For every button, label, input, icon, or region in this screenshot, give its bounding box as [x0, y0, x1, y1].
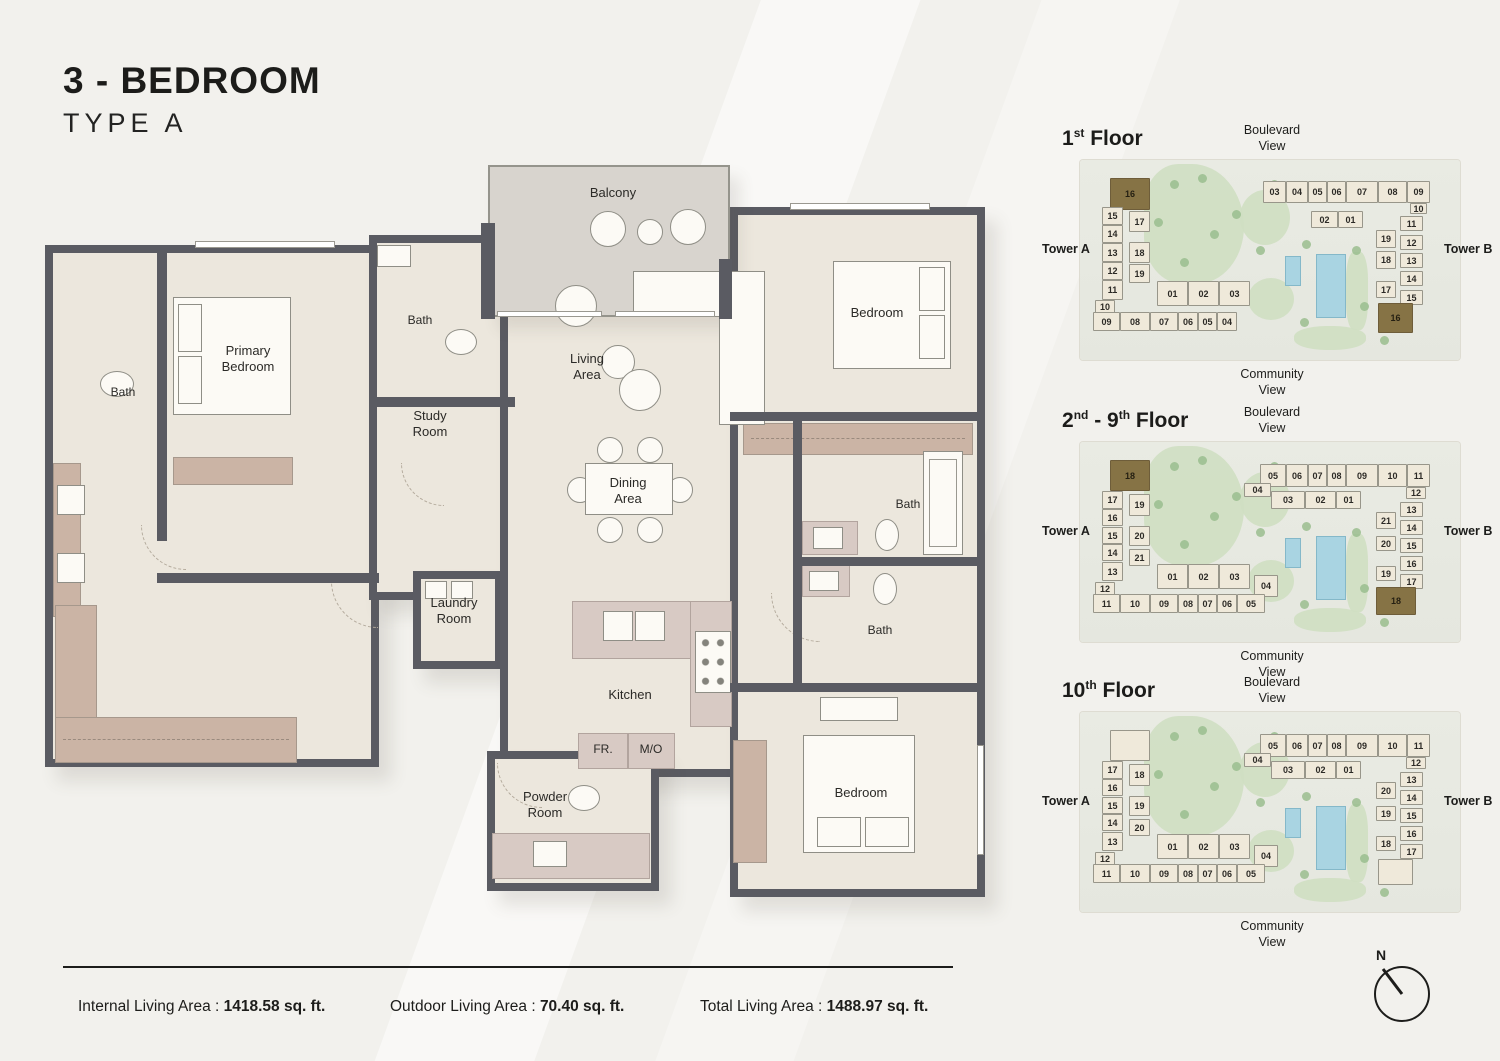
unit-cell: 17 [1102, 491, 1123, 509]
unit-cell: 19 [1129, 494, 1150, 516]
page-title: 3 - BEDROOM [63, 60, 321, 102]
unit-cell: 10 [1378, 734, 1407, 757]
tree-icon [1256, 528, 1265, 537]
unit-cell: 06 [1286, 734, 1308, 757]
window [790, 203, 930, 210]
unit-cell: 02 [1188, 564, 1219, 589]
dresser [820, 697, 898, 721]
unit-cell: 08 [1378, 181, 1407, 203]
room-label: Bath [868, 623, 893, 638]
unit-cell: 01 [1157, 564, 1188, 589]
unit-cell: 01 [1338, 211, 1363, 228]
stat-value: 1488.97 sq. ft. [827, 998, 929, 1015]
unit-cell: 09 [1407, 181, 1430, 203]
title-segment: 1 [1062, 127, 1074, 150]
wardrobe-dash [751, 438, 965, 439]
title-segment: st [1074, 126, 1085, 140]
unit-cell-highlighted: 18 [1110, 460, 1150, 491]
window [615, 311, 715, 317]
room-label: Bath [111, 385, 136, 400]
unit-cell: 16 [1102, 779, 1123, 796]
wall [481, 223, 495, 319]
wall [719, 259, 732, 319]
room-label: Dining Area [610, 475, 647, 508]
unit-cell: 09 [1346, 734, 1378, 757]
unit-cell: 12 [1102, 262, 1123, 280]
wall [730, 412, 985, 421]
key-plan-title: 2nd - 9th Floor [1062, 408, 1188, 433]
boulevard-view-label: Boulevard View [1232, 674, 1312, 707]
swimming-pool [1285, 538, 1301, 568]
stat-label: Outdoor Living Area [390, 998, 527, 1015]
key-plan-floor-1: 1st Floor Boulevard View 161514131211101… [1040, 120, 1500, 400]
unit-cell: 06 [1327, 181, 1346, 203]
swimming-pool [1316, 536, 1346, 600]
window [977, 745, 984, 855]
unit-cell: 19 [1376, 566, 1396, 581]
tree-icon [1170, 462, 1179, 471]
unit-cell: 03 [1271, 761, 1305, 779]
unit-cell: 07 [1198, 594, 1217, 613]
unit-cell: 12 [1406, 487, 1426, 499]
unit-cell: 08 [1178, 864, 1198, 883]
unit-cell: 02 [1311, 211, 1338, 228]
tree-icon [1380, 336, 1389, 345]
unit-cell: 06 [1217, 594, 1237, 613]
tree-icon [1198, 456, 1207, 465]
unit-cell: 17 [1129, 211, 1150, 232]
stat-label: Internal Living Area [78, 998, 211, 1015]
unit-cell-highlighted: 16 [1110, 178, 1150, 210]
unit-cell: 03 [1263, 181, 1286, 203]
tree-icon [1210, 512, 1219, 521]
tower-b-label: Tower B [1444, 242, 1492, 256]
unit-cell: 03 [1219, 281, 1250, 306]
landscape-green [1346, 534, 1368, 612]
tree-icon [1302, 522, 1311, 531]
title-segment: Floor [1084, 127, 1142, 150]
room-label: Powder Room [523, 789, 567, 822]
tree-icon [1300, 318, 1309, 327]
tower-b-label: Tower B [1444, 524, 1492, 538]
unit-cell: 15 [1400, 538, 1423, 553]
unit-cell: 12 [1400, 235, 1423, 250]
tree-icon [1352, 798, 1361, 807]
unit-cell: 20 [1129, 819, 1150, 836]
armchair [555, 285, 597, 327]
unit-cell: 13 [1400, 502, 1423, 517]
unit-cell: 05 [1308, 181, 1327, 203]
pillow [817, 817, 861, 847]
tree-icon [1232, 210, 1241, 219]
unit-cell: 21 [1129, 549, 1150, 566]
tree-icon [1154, 770, 1163, 779]
unit-cell: 07 [1198, 864, 1217, 883]
unit-cell: 11 [1102, 280, 1123, 300]
unit-cell: 05 [1237, 864, 1265, 883]
room-label: Bath [408, 313, 433, 328]
unit-cell: 18 [1129, 764, 1150, 786]
unit-cell: 15 [1102, 527, 1123, 544]
tree-icon [1180, 810, 1189, 819]
title-segment: 2 [1062, 409, 1074, 432]
unit-cell: 11 [1093, 594, 1120, 613]
unit-cell: 07 [1346, 181, 1378, 203]
sink [813, 527, 843, 549]
unit-cell: 11 [1407, 734, 1430, 757]
title-segment: nd [1074, 408, 1089, 422]
sink [377, 245, 411, 267]
wall [730, 683, 985, 692]
unit-cell: 17 [1400, 844, 1423, 859]
room-label: Balcony [590, 185, 636, 201]
closet-dash [63, 739, 289, 740]
landscape-green [1294, 326, 1366, 350]
pillow [919, 267, 945, 311]
swimming-pool [1285, 256, 1301, 286]
tower-a-label: Tower A [1042, 242, 1090, 256]
compass-needle [1383, 969, 1402, 994]
dining-chair [597, 517, 623, 543]
unit-cell: 18 [1376, 251, 1396, 269]
stat-separator: : [814, 998, 827, 1015]
wall [157, 573, 379, 583]
wall [793, 557, 985, 566]
dining-chair [597, 437, 623, 463]
stove [695, 631, 731, 693]
tree-icon [1180, 540, 1189, 549]
community-view-label: Community View [1232, 918, 1312, 951]
unit-cell: 13 [1400, 772, 1423, 787]
tree-icon [1154, 500, 1163, 509]
tree-icon [1256, 798, 1265, 807]
unit-cell: 19 [1129, 796, 1150, 816]
unit-cell: 04 [1244, 753, 1271, 767]
tree-icon [1154, 218, 1163, 227]
unit-cell: 01 [1157, 281, 1188, 306]
key-plan-floor-10: 10th Floor Boulevard View 17161514131218… [1040, 672, 1500, 952]
unit-cell: 02 [1188, 281, 1219, 306]
unit-cell: 15 [1400, 808, 1423, 823]
unit-cell: 19 [1376, 806, 1396, 821]
pillow [178, 356, 202, 404]
unit-cell: 16 [1400, 556, 1423, 571]
unit-cell: 09 [1346, 464, 1378, 487]
toilet [445, 329, 477, 355]
unit-cell: 10 [1120, 864, 1150, 883]
toilet [875, 519, 899, 551]
stat-value: 1418.58 sq. ft. [224, 998, 326, 1015]
dining-chair [637, 517, 663, 543]
community-view-label: Community View [1232, 366, 1312, 399]
toilet [568, 785, 600, 811]
outdoor-living-area-stat: Outdoor Living Area : 70.40 sq. ft. [390, 998, 624, 1016]
unit-cell: 05 [1198, 312, 1217, 331]
unit-cell: 14 [1400, 520, 1423, 535]
tree-icon [1380, 618, 1389, 627]
unit-cell: 14 [1102, 814, 1123, 831]
tree-icon [1210, 230, 1219, 239]
north-label: N [1376, 947, 1386, 963]
primary-wardrobe [173, 457, 293, 485]
title-segment: 10 [1062, 679, 1085, 702]
unit-cell: 06 [1217, 864, 1237, 883]
unit-cell: 02 [1188, 834, 1219, 859]
swimming-pool [1316, 254, 1346, 318]
landscape-green [1294, 608, 1366, 632]
pillow [178, 304, 202, 352]
swimming-pool [1285, 808, 1301, 838]
unit-cell: 06 [1286, 464, 1308, 487]
room-label: Living Area [570, 351, 604, 384]
unit-cell: 12 [1406, 757, 1426, 769]
unit-cell: 15 [1102, 207, 1123, 225]
unit-cell: 01 [1157, 834, 1188, 859]
unit-cell: 10 [1120, 594, 1150, 613]
room-label: Bedroom [851, 305, 904, 321]
tree-icon [1232, 762, 1241, 771]
unit-cell: 16 [1102, 509, 1123, 526]
sink [533, 841, 567, 867]
unit-cell: 14 [1102, 225, 1123, 243]
tree-icon [1210, 782, 1219, 791]
sink [57, 553, 85, 583]
tree-icon [1352, 528, 1361, 537]
unit-cell: 13 [1400, 253, 1423, 268]
tree-icon [1198, 726, 1207, 735]
wall [793, 415, 802, 691]
unit-cell: 10 [1410, 203, 1427, 214]
title-segment: Floor [1130, 409, 1188, 432]
unit-cell: 08 [1327, 734, 1346, 757]
room-label: Kitchen [608, 687, 651, 703]
tree-icon [1170, 732, 1179, 741]
unit-cell: 14 [1400, 790, 1423, 805]
unit-cell: 11 [1407, 464, 1430, 487]
title-segment: - 9 [1088, 409, 1118, 432]
internal-living-area-stat: Internal Living Area : 1418.58 sq. ft. [78, 998, 325, 1016]
tree-icon [1300, 870, 1309, 879]
unit-cell: 17 [1102, 761, 1123, 779]
stat-value: 70.40 sq. ft. [540, 998, 624, 1015]
wall [369, 397, 515, 407]
room-label: Bath [896, 497, 921, 512]
floor-plan: BalconyPrimary BedroomBathBathStudy Room… [45, 165, 985, 935]
unit-cell: 14 [1400, 271, 1423, 286]
balcony-chair [670, 209, 706, 245]
tree-icon [1170, 180, 1179, 189]
tree-icon [1302, 792, 1311, 801]
unit-cell: 07 [1150, 312, 1178, 331]
unit-cell: 02 [1305, 761, 1336, 779]
room-label: M/O [640, 742, 663, 757]
toilet [873, 573, 897, 605]
title-segment: th [1085, 678, 1096, 692]
swimming-pool [1316, 806, 1346, 870]
tree-icon [1198, 174, 1207, 183]
unit-cell: 03 [1219, 834, 1250, 859]
unit-cell: 18 [1129, 242, 1150, 263]
unit-cell: 09 [1150, 864, 1178, 883]
dining-chair [637, 437, 663, 463]
powder-vanity [492, 833, 650, 879]
title-segment: th [1119, 408, 1130, 422]
wall [157, 253, 167, 541]
unit-cell: 13 [1102, 562, 1123, 581]
tree-icon [1180, 258, 1189, 267]
unit-cell: 09 [1093, 312, 1120, 331]
key-plan-title: 10th Floor [1062, 678, 1155, 703]
unit-cell: 15 [1102, 797, 1123, 814]
unit-cell: 03 [1271, 491, 1305, 509]
tree-icon [1360, 584, 1369, 593]
unit-cell: 08 [1120, 312, 1150, 331]
unit-cell: 20 [1129, 526, 1150, 546]
north-compass: N [1356, 936, 1440, 1028]
unit-cell: 06 [1178, 312, 1198, 331]
stat-separator: : [527, 998, 540, 1015]
tower-a-label: Tower A [1042, 524, 1090, 538]
unit-cell: 11 [1093, 864, 1120, 883]
tree-icon [1302, 240, 1311, 249]
unit-cell: 04 [1217, 312, 1237, 331]
unit-cell-highlighted: 16 [1378, 303, 1413, 333]
key-plan-title: 1st Floor [1062, 126, 1143, 151]
room-label: Primary Bedroom [222, 343, 275, 376]
room-label: Study Room [413, 408, 448, 441]
sink [57, 485, 85, 515]
unit-cell: 20 [1376, 782, 1396, 799]
brochure-page: 3 - BEDROOM TYPE A [0, 0, 1500, 1061]
tree-icon [1256, 246, 1265, 255]
bathtub [923, 451, 963, 555]
unit-cell: 07 [1308, 464, 1327, 487]
pillow [919, 315, 945, 359]
boulevard-view-label: Boulevard View [1232, 404, 1312, 437]
island-sink [635, 611, 665, 641]
window [497, 311, 602, 317]
unit-cell: 11 [1400, 216, 1423, 231]
unit-cell: 21 [1376, 512, 1396, 529]
pillow [865, 817, 909, 847]
site-map: 1716151413121819200102030411100908070605… [1080, 712, 1460, 912]
tower-a-label: Tower A [1042, 794, 1090, 808]
stat-separator: : [211, 998, 224, 1015]
page-subtitle: TYPE A [63, 108, 188, 139]
unit-cell: 01 [1336, 491, 1361, 509]
footer-divider [63, 966, 953, 968]
unit-cell: 07 [1308, 734, 1327, 757]
unit-cell: 13 [1102, 832, 1123, 851]
window [195, 241, 335, 248]
unit-cell [1110, 730, 1150, 761]
unit-cell: 13 [1102, 243, 1123, 262]
tree-icon [1380, 888, 1389, 897]
island-sink [603, 611, 633, 641]
room-label: FR. [593, 742, 612, 757]
unit-cell: 04 [1244, 483, 1271, 497]
unit-cell: 20 [1376, 536, 1396, 551]
tower-b-label: Tower B [1444, 794, 1492, 808]
unit-cell [1378, 859, 1413, 885]
unit-cell: 14 [1102, 544, 1123, 561]
closet-horizontal [55, 717, 297, 763]
landscape-green [1346, 252, 1368, 330]
coffee-table [619, 369, 661, 411]
unit-cell: 16 [1400, 826, 1423, 841]
balcony-table [637, 219, 663, 245]
tree-icon [1300, 600, 1309, 609]
unit-cell: 03 [1219, 564, 1250, 589]
boulevard-view-label: Boulevard View [1232, 122, 1312, 155]
unit-cell: 05 [1237, 594, 1265, 613]
unit-cell: 19 [1129, 264, 1150, 283]
unit-cell: 10 [1378, 464, 1407, 487]
key-plan-floor-2-9: 2nd - 9th Floor Boulevard View 181716151… [1040, 402, 1500, 682]
unit-cell: 01 [1336, 761, 1361, 779]
tree-icon [1360, 854, 1369, 863]
unit-cell-highlighted: 18 [1376, 587, 1416, 615]
sink [809, 571, 839, 591]
total-living-area-stat: Total Living Area : 1488.97 sq. ft. [700, 998, 928, 1016]
tree-icon [1232, 492, 1241, 501]
title-segment: Floor [1097, 679, 1155, 702]
bedroom2-closet [733, 740, 767, 863]
room-label: Bedroom [835, 785, 888, 801]
landscape-green [1346, 804, 1368, 882]
unit-cell: 08 [1178, 594, 1198, 613]
tree-icon [1360, 302, 1369, 311]
unit-cell: 09 [1150, 594, 1178, 613]
unit-cell: 19 [1376, 230, 1396, 248]
unit-cell: 08 [1327, 464, 1346, 487]
unit-cell: 17 [1376, 281, 1396, 298]
site-map: 1817161514131219202101020304111009080706… [1080, 442, 1460, 642]
landscape-green [1294, 878, 1366, 902]
tree-icon [1352, 246, 1361, 255]
balcony-chair [590, 211, 626, 247]
unit-cell: 04 [1286, 181, 1308, 203]
unit-cell: 02 [1305, 491, 1336, 509]
stat-label: Total Living Area [700, 998, 814, 1015]
room-label: Laundry Room [431, 595, 478, 628]
unit-cell: 18 [1376, 836, 1396, 851]
site-map: 1615141312111017181901020309080706050403… [1080, 160, 1460, 360]
